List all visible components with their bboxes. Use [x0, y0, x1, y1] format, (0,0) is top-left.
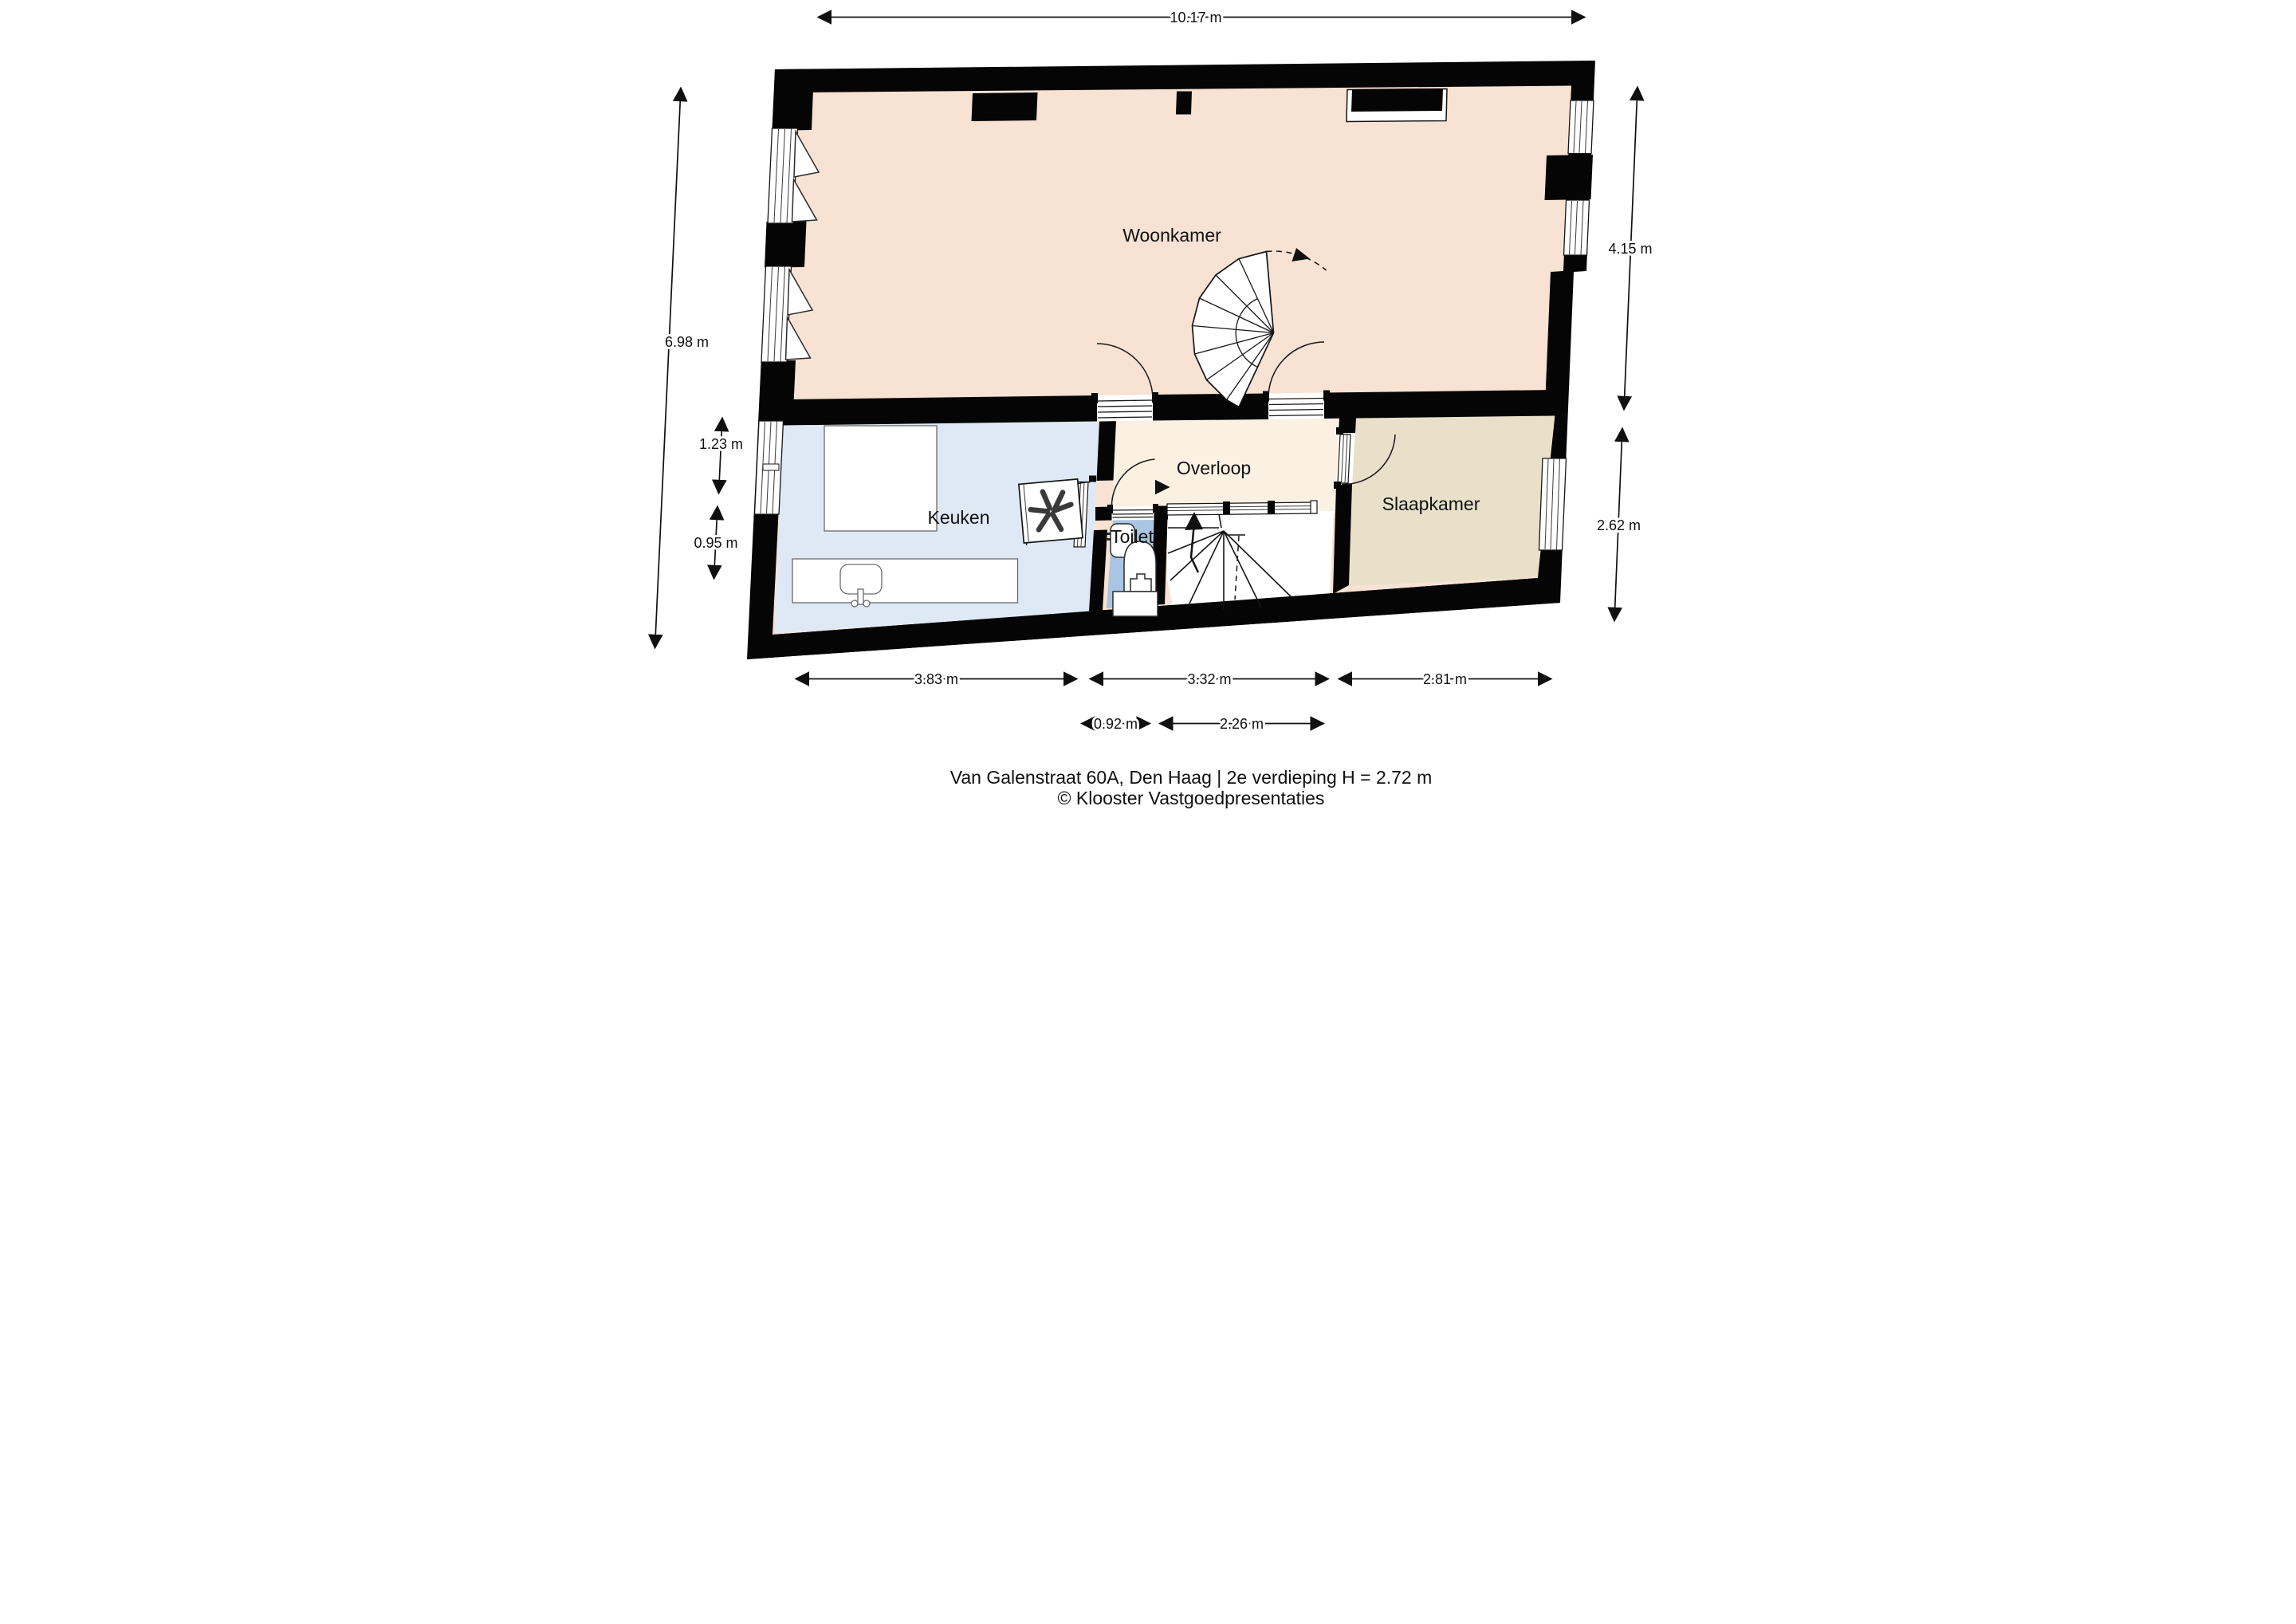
dim-bottom-toilet: 0.92 m [1082, 716, 1150, 732]
dim-bottom-keuken: 3.83 m [796, 671, 1077, 687]
dim-bottom-overloop: 3.32 m [1090, 671, 1329, 687]
dim-left-wall-segment-label: 0.95 m [694, 535, 737, 551]
dividing-wall-left [783, 395, 1097, 426]
ventilation-fan-icon [1019, 479, 1083, 543]
left-wall-top-corner [773, 69, 814, 132]
dim-bottom-toilet-label: 0.92 m [1094, 716, 1138, 732]
dim-left-wall-segment: 0.95 m [694, 506, 737, 579]
dim-bottom-slaapkamer: 2.81 m [1339, 671, 1551, 687]
dim-bottom-keuken-label: 3.83 m [914, 671, 958, 687]
plan-copyright: © Klooster Vastgoedpresentaties [1058, 788, 1325, 808]
dim-bottom-stairs: 2.26 m [1160, 716, 1324, 732]
dividing-wall-middle [1153, 394, 1268, 421]
right-wall-pier [1545, 155, 1594, 200]
label-toilet: Toilet [1111, 526, 1154, 547]
top-wall-niche-block [1351, 88, 1443, 112]
title-block: Van Galenstraat 60A, Den Haag | 2e verdi… [950, 767, 1433, 808]
dim-left-height-label: 6.98 m [665, 334, 709, 350]
top-wall-pillar [972, 92, 1038, 121]
kitchen-block-icon [824, 426, 937, 531]
dim-left-window: 1.23 m [699, 418, 743, 493]
kitchen-counter-icon [792, 559, 1018, 603]
window-right-lower-icon [1564, 200, 1590, 255]
dim-right-woonkamer: 4.15 m [1608, 87, 1652, 410]
label-slaapkamer: Slaapkamer [1382, 493, 1480, 514]
toilet-cistern-icon [1113, 592, 1158, 616]
window-slaapkamer-icon [1539, 458, 1567, 550]
left-wall-kitchen-junction [759, 360, 796, 422]
dim-right-slaapkamer: 2.62 m [1597, 428, 1641, 621]
label-woonkamer: Woonkamer [1122, 225, 1221, 246]
dividing-wall-right [1324, 390, 1556, 419]
dim-top-width-label: 10.17 m [1170, 10, 1221, 26]
label-overloop: Overloop [1177, 458, 1251, 478]
dim-top-width: 10.17 m [818, 10, 1585, 26]
wall-keuken-overloop [1097, 421, 1117, 481]
floorplan-canvas: Woonkamer Keuken Overloop Toilet Slaapka… [574, 0, 1722, 812]
window-keuken-icon [755, 421, 784, 514]
left-wall-pier [765, 222, 807, 268]
top-wall-stub [1176, 92, 1192, 115]
dim-bottom-slaapkamer-label: 2.81 m [1423, 671, 1467, 687]
label-keuken: Keuken [927, 507, 989, 528]
floorplan-page: Woonkamer Keuken Overloop Toilet Slaapka… [574, 0, 1722, 812]
window-right-upper-icon [1568, 100, 1594, 154]
dim-bottom-overloop-label: 3.32 m [1187, 671, 1231, 687]
dim-left-height: 6.98 m [655, 88, 710, 648]
dim-bottom-stairs-label: 2.26 m [1220, 716, 1264, 732]
plan-title: Van Galenstraat 60A, Den Haag | 2e verdi… [950, 767, 1433, 788]
dim-left-window-label: 1.23 m [699, 436, 743, 452]
dim-right-slaapkamer-label: 2.62 m [1597, 517, 1641, 533]
dim-right-woonkamer-label: 4.15 m [1608, 241, 1652, 257]
